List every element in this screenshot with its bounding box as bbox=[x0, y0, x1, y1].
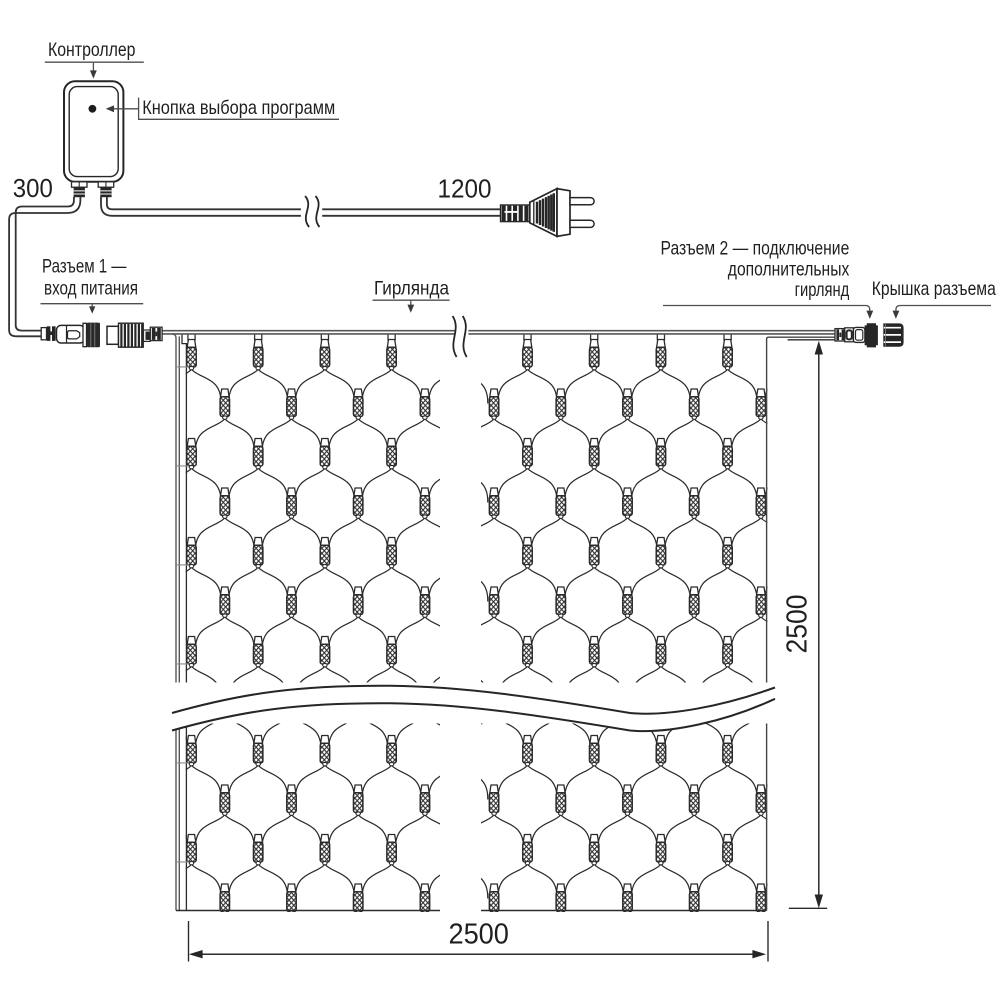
svg-text:300: 300 bbox=[13, 175, 53, 203]
svg-text:1200: 1200 bbox=[438, 175, 492, 203]
svg-text:2500: 2500 bbox=[781, 595, 813, 654]
svg-text:дополнительных: дополнительных bbox=[728, 259, 850, 281]
svg-text:Разъем 1 —: Разъем 1 — bbox=[42, 256, 127, 278]
svg-text:Контроллер: Контроллер bbox=[48, 39, 136, 61]
svg-text:вход питания: вход питания bbox=[44, 278, 138, 300]
svg-text:2500: 2500 bbox=[448, 919, 509, 951]
svg-text:Крышка разъема: Крышка разъема bbox=[872, 278, 996, 300]
svg-text:Кнопка выбора программ: Кнопка выбора программ bbox=[142, 97, 335, 119]
svg-text:гирлянд: гирлянд bbox=[795, 279, 850, 301]
svg-text:Разъем 2 — подключение: Разъем 2 — подключение bbox=[661, 237, 850, 259]
svg-text:Гирлянда: Гирлянда bbox=[374, 278, 449, 300]
